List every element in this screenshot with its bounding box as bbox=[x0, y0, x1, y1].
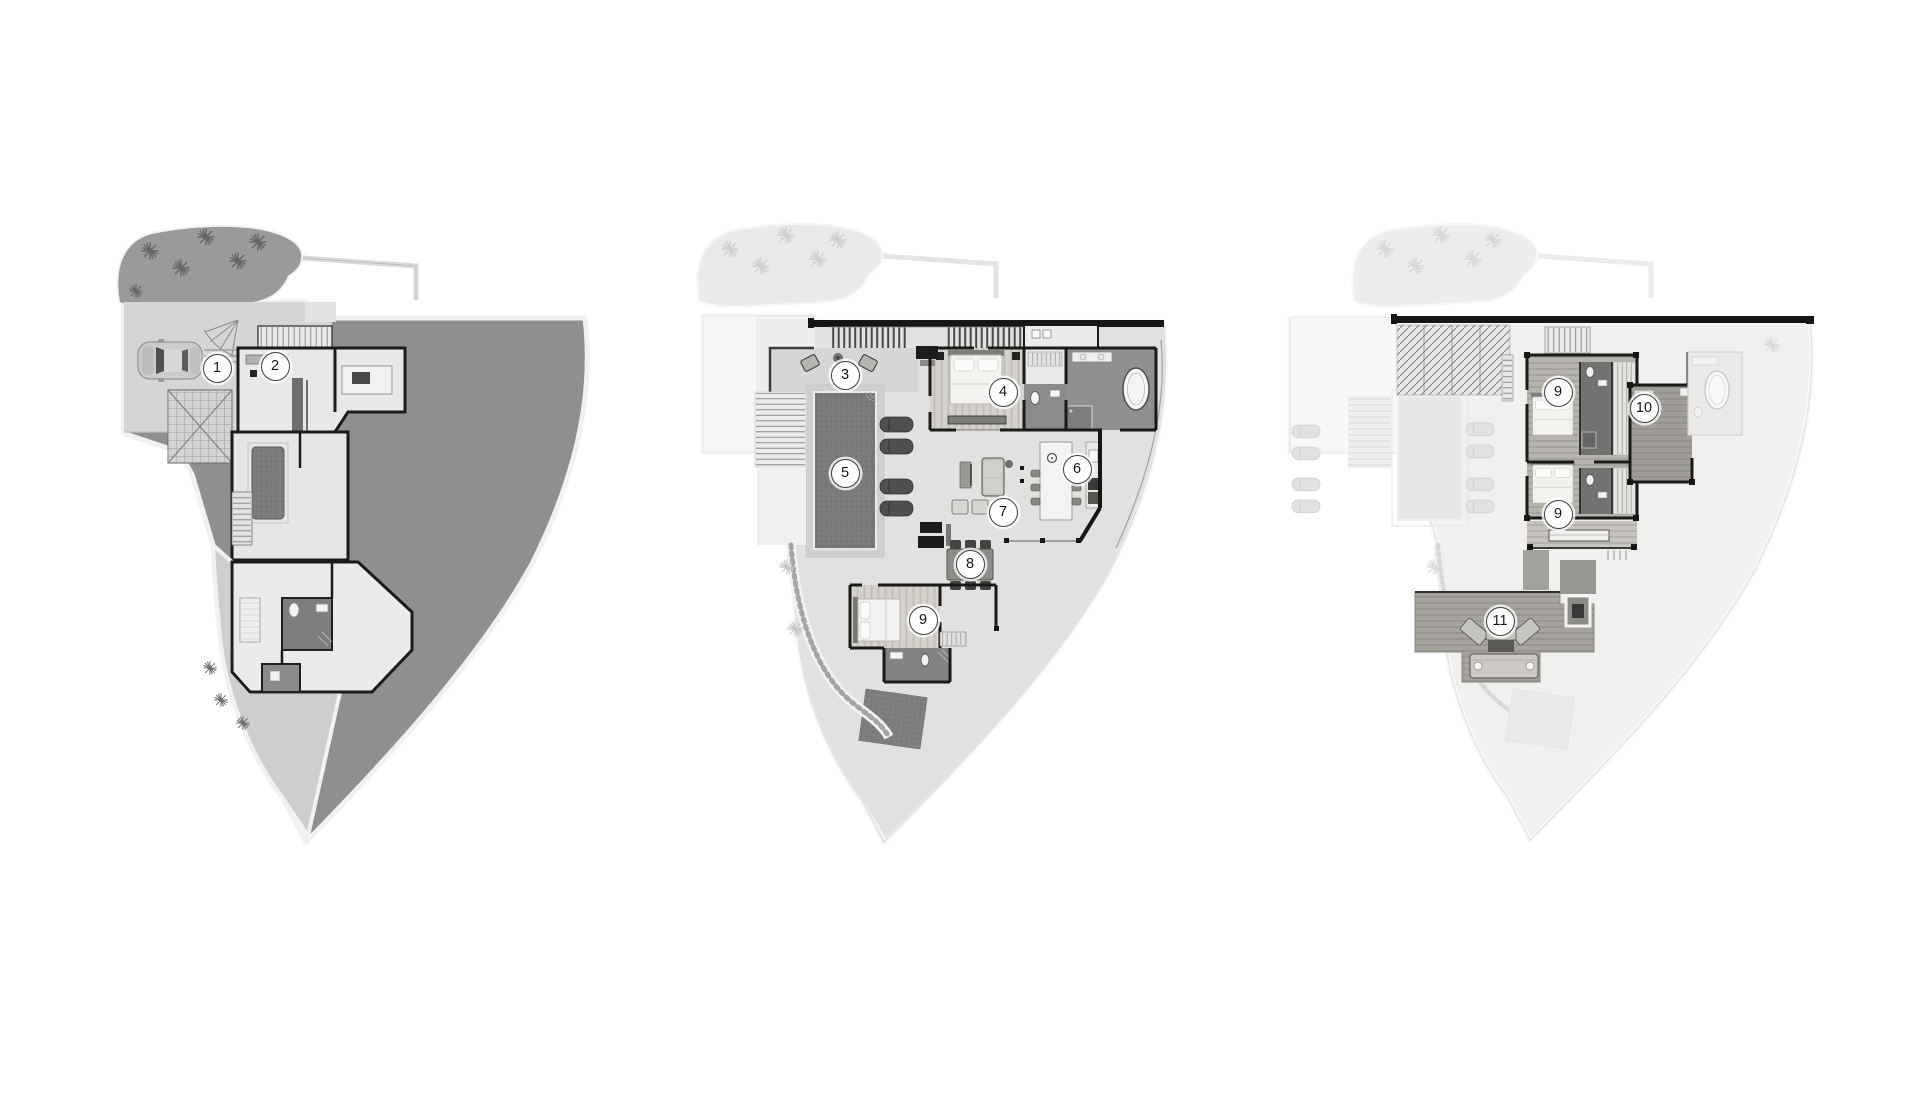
ghost-pool bbox=[1348, 390, 1468, 526]
basement-stair bbox=[232, 492, 252, 545]
guest-bedroom bbox=[850, 585, 940, 648]
top-wall bbox=[1395, 316, 1814, 323]
entry-landing bbox=[305, 302, 336, 322]
pool-stair-deck bbox=[755, 392, 806, 545]
dining-table bbox=[947, 549, 993, 580]
ghost-bathroom bbox=[1688, 352, 1742, 435]
ensuite-bath-1 bbox=[1580, 362, 1612, 455]
room-10 bbox=[1627, 382, 1695, 485]
bench bbox=[1549, 530, 1609, 541]
plan-lower-level bbox=[118, 227, 587, 842]
ensuite-bath-2 bbox=[1580, 468, 1612, 514]
armchair bbox=[952, 500, 968, 514]
armchair bbox=[972, 500, 988, 514]
kitchen-island bbox=[1040, 442, 1072, 520]
wc bbox=[1024, 384, 1066, 430]
car bbox=[138, 339, 202, 382]
floor-plans-drawing bbox=[0, 0, 1920, 1112]
hall-closet bbox=[940, 632, 966, 646]
utility-corridor bbox=[1024, 326, 1098, 348]
coffee-table bbox=[1488, 640, 1514, 652]
guest-bathroom bbox=[884, 648, 950, 682]
outdoor-sofa bbox=[1470, 654, 1538, 678]
master-bathroom bbox=[1066, 348, 1156, 430]
dining-area bbox=[947, 540, 993, 590]
tv-sideboard bbox=[960, 462, 971, 488]
plant bbox=[1005, 460, 1013, 468]
trellis-pergola bbox=[168, 390, 232, 463]
plan-upper-level bbox=[1290, 225, 1814, 840]
plan-main-level bbox=[698, 225, 1165, 842]
bedroom-suites bbox=[1524, 352, 1639, 521]
ghost-garden-wall bbox=[883, 256, 996, 298]
ghost-garden-wall bbox=[1538, 256, 1651, 298]
storage-shelf bbox=[246, 355, 288, 364]
bathtub bbox=[1123, 368, 1149, 410]
kitchen bbox=[1031, 442, 1100, 520]
bedroom-main bbox=[916, 346, 1024, 430]
swimming-pool bbox=[814, 392, 876, 549]
bathroom-dark bbox=[282, 598, 332, 650]
ghost-rug bbox=[1506, 689, 1575, 749]
bed-1 bbox=[1531, 393, 1575, 435]
side-patio bbox=[703, 316, 757, 452]
pergola-void bbox=[1397, 325, 1510, 395]
top-wall bbox=[812, 320, 1164, 327]
bed bbox=[948, 350, 1004, 404]
bed-2 bbox=[1531, 461, 1575, 503]
outdoor-fireplace bbox=[1566, 596, 1590, 626]
floor-plan-sheet: 12 3456789 910911 bbox=[0, 0, 1920, 1112]
bathroom-small bbox=[262, 664, 300, 692]
